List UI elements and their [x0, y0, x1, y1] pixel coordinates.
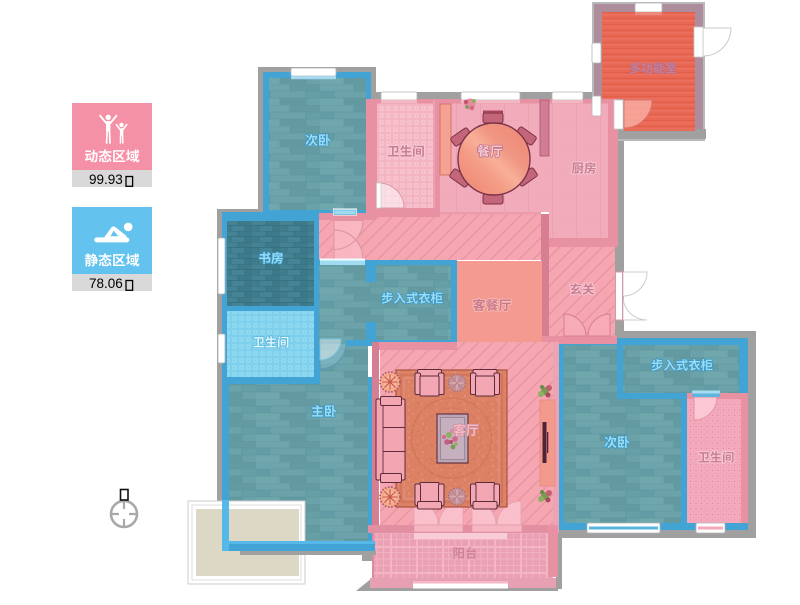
svg-text:78.06: 78.06	[89, 276, 123, 291]
svg-text:99.93: 99.93	[89, 172, 123, 187]
